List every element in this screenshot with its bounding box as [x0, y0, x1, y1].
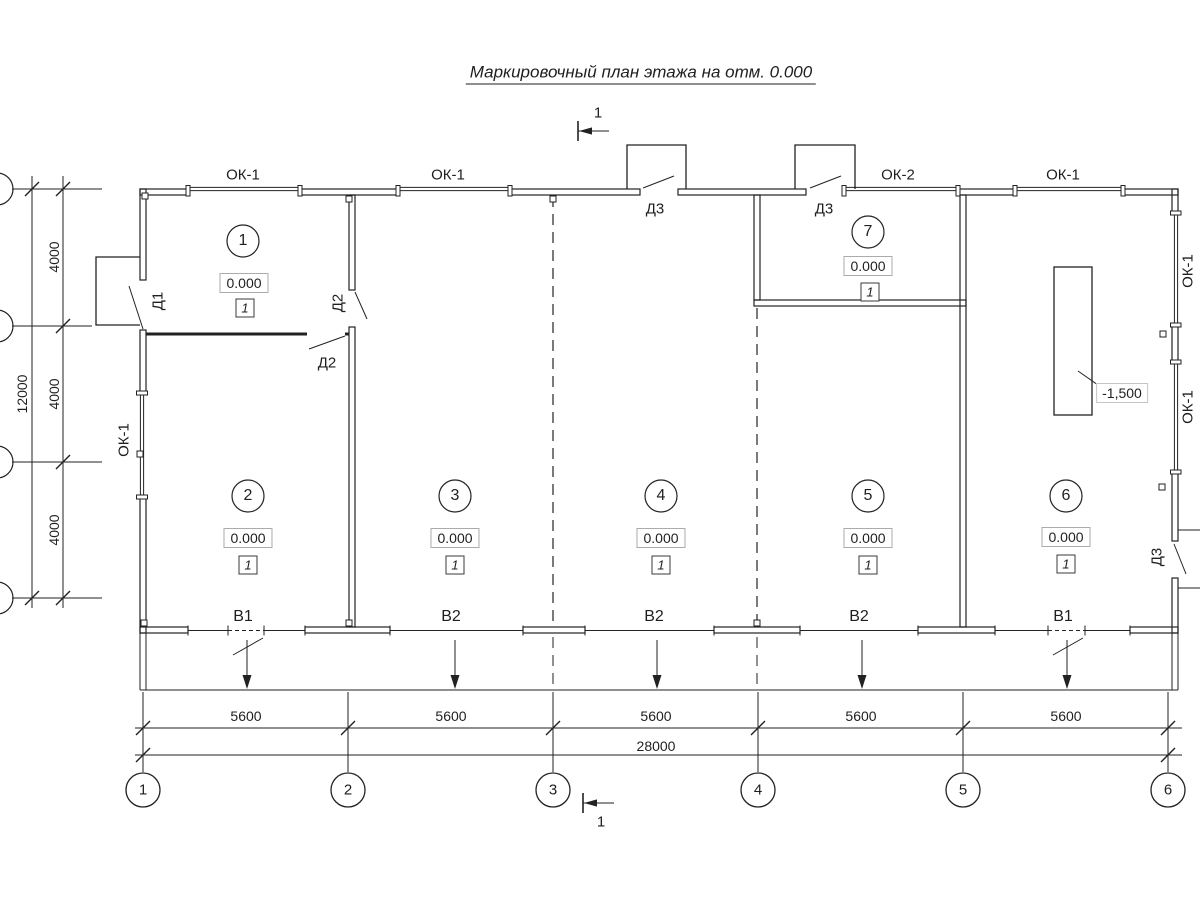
drawing-title: Маркировочный план этажа на отм. 0.000 — [466, 64, 816, 85]
window-label-ok1-left: ОК-1 — [117, 423, 132, 457]
drain-label: В2 — [849, 609, 869, 625]
door-label-d2-upper: Д2 — [331, 294, 346, 313]
door-label-d3-right: Д3 — [815, 202, 834, 217]
room-floor-type-box: 1 — [236, 299, 255, 318]
room-elevation-box: 0.000 — [219, 273, 268, 293]
room-elevation-box: 0.000 — [843, 528, 892, 548]
floor-plan-canvas: Маркировочный план этажа на отм. 0.000 1… — [0, 0, 1200, 900]
door-label-d2-lower: Д2 — [318, 356, 337, 371]
window-label-ok1-right-2: ОК-1 — [1181, 390, 1196, 424]
room-number: 6 — [1062, 488, 1071, 504]
room-elevation-box: 0.000 — [843, 256, 892, 276]
room-number: 7 — [864, 224, 873, 240]
room-floor-type-box: 1 — [859, 556, 878, 575]
window-label-ok1-right-1: ОК-1 — [1181, 254, 1196, 288]
axis-number: 3 — [549, 783, 557, 798]
window-label-ok1-top-3: ОК-1 — [1046, 168, 1080, 183]
room-floor-type-box: 1 — [861, 283, 880, 302]
room-elevation-box: 0.000 — [1041, 527, 1090, 547]
room-floor-type-box: 1 — [446, 556, 465, 575]
room-number: 1 — [239, 233, 248, 249]
axis-number: 2 — [344, 783, 352, 798]
room-floor-type-box: 1 — [1057, 555, 1076, 574]
drain-label: В1 — [233, 609, 253, 625]
room-elevation-box: 0.000 — [223, 528, 272, 548]
room-elevation-box: 0.000 — [636, 528, 685, 548]
door-label-d3-left: Д3 — [646, 202, 665, 217]
axis-number: 4 — [754, 783, 762, 798]
axis-number: 1 — [139, 783, 147, 798]
axis-number: 6 — [1164, 783, 1172, 798]
dim-span: 4000 — [47, 241, 61, 272]
door-label-d3-side: Д3 — [1150, 548, 1165, 567]
dim-total-left: 12000 — [15, 375, 29, 414]
dim-span: 5600 — [640, 709, 671, 723]
dim-span: 5600 — [845, 709, 876, 723]
plan-geometry — [0, 0, 1200, 900]
pit-depth-label: -1,500 — [1096, 383, 1148, 403]
dim-span: 4000 — [47, 514, 61, 545]
dim-span: 4000 — [47, 378, 61, 409]
room-floor-type-box: 1 — [652, 556, 671, 575]
room-number: 4 — [657, 488, 666, 504]
dim-span: 5600 — [230, 709, 261, 723]
dim-span: 5600 — [435, 709, 466, 723]
room-floor-type-box: 1 — [239, 556, 258, 575]
section-mark-bottom-label: 1 — [597, 815, 605, 830]
drain-label: В1 — [1053, 609, 1073, 625]
room-number: 2 — [244, 488, 253, 504]
window-label-ok2-top: ОК-2 — [881, 168, 915, 183]
room-number: 5 — [864, 488, 873, 504]
window-label-ok1-top-1: ОК-1 — [226, 168, 260, 183]
window-label-ok1-top-2: ОК-1 — [431, 168, 465, 183]
section-mark-top-label: 1 — [594, 106, 602, 121]
room-number: 3 — [451, 488, 460, 504]
axis-number: 5 — [959, 783, 967, 798]
drain-label: В2 — [644, 609, 664, 625]
drain-label: В2 — [441, 609, 461, 625]
door-label-d1: Д1 — [151, 292, 166, 311]
dim-span: 5600 — [1050, 709, 1081, 723]
dim-total-bottom: 28000 — [637, 739, 676, 753]
room-elevation-box: 0.000 — [430, 528, 479, 548]
